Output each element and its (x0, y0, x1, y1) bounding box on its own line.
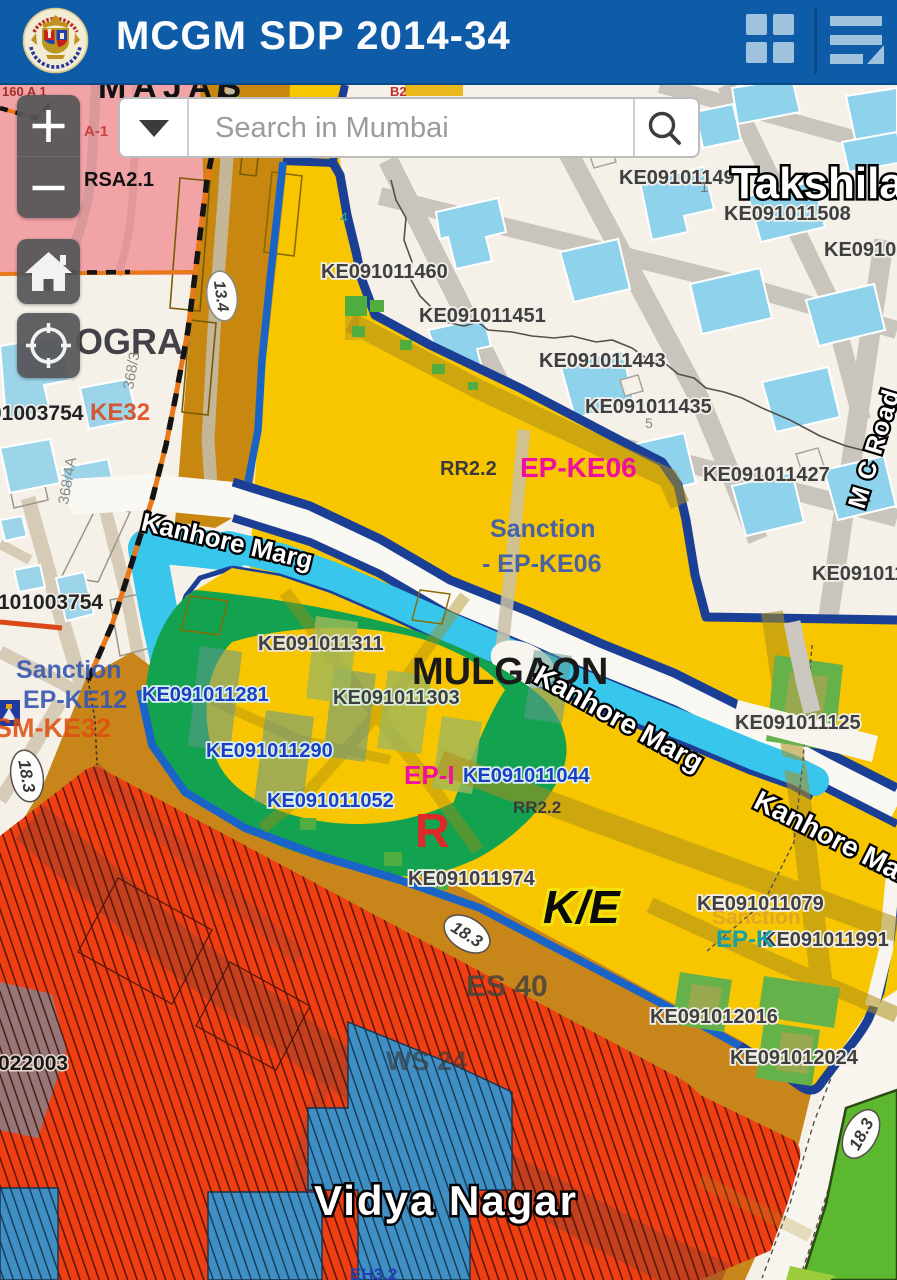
svg-text:101003754: 101003754 (0, 591, 103, 614)
svg-text:022003: 022003 (0, 1052, 68, 1075)
svg-text:4: 4 (340, 209, 348, 225)
svg-text:KE091011427: KE091011427 (703, 464, 830, 486)
svg-text:Takshila: Takshila (731, 159, 897, 208)
svg-text:R: R (415, 805, 450, 858)
svg-text:Sanction: Sanction (490, 515, 596, 543)
svg-text:KE091011052: KE091011052 (267, 790, 394, 812)
svg-text:EP-KE12: EP-KE12 (23, 686, 127, 714)
svg-text:KE091011991: KE091011991 (762, 929, 889, 951)
svg-text:EH3.2: EH3.2 (350, 1265, 397, 1280)
svg-text:1: 1 (700, 179, 708, 196)
svg-text:RR2.2: RR2.2 (440, 458, 497, 480)
svg-text:K/E: K/E (543, 881, 621, 933)
svg-text:KE091011460: KE091011460 (321, 261, 448, 283)
svg-text:KE091011974: KE091011974 (408, 868, 536, 890)
svg-text:RSA2.1: RSA2.1 (84, 169, 154, 191)
svg-text:KE091011311: KE091011311 (258, 633, 384, 655)
svg-text:KE091012016: KE091012016 (650, 1006, 778, 1028)
svg-text:WS 24: WS 24 (386, 1046, 467, 1076)
svg-text:KE091011290: KE091011290 (206, 740, 333, 762)
svg-text:RR2.2: RR2.2 (513, 798, 561, 817)
svg-text:KE091011044: KE091011044 (463, 765, 591, 787)
svg-text:KE091011281: KE091011281 (142, 684, 269, 706)
svg-text:EP-KE06: EP-KE06 (520, 452, 637, 483)
svg-text:EP-I: EP-I (404, 760, 455, 790)
svg-text:Vidya Nagar: Vidya Nagar (314, 1177, 578, 1224)
svg-text:KE32: KE32 (90, 399, 150, 426)
svg-text:A-1: A-1 (84, 123, 108, 140)
svg-text:KE091012024: KE091012024 (730, 1047, 859, 1069)
svg-text:KE09101149: KE09101149 (619, 167, 735, 189)
svg-text:KE0910115: KE0910115 (824, 239, 897, 261)
svg-text:SM-KE32: SM-KE32 (0, 713, 111, 743)
svg-text:5: 5 (645, 415, 653, 431)
svg-text:ES 40: ES 40 (466, 970, 548, 1003)
svg-text:KE091011443: KE091011443 (539, 350, 666, 372)
svg-text:KE091011: KE091011 (812, 563, 897, 585)
svg-text:Sanction: Sanction (16, 656, 122, 684)
svg-text:- EP-KE06: - EP-KE06 (482, 550, 601, 578)
svg-text:01003754: 01003754 (0, 402, 84, 425)
svg-text:KE091011451: KE091011451 (419, 305, 546, 327)
svg-text:EP-K: EP-K (716, 926, 774, 953)
svg-text:KE091011125: KE091011125 (735, 712, 861, 734)
